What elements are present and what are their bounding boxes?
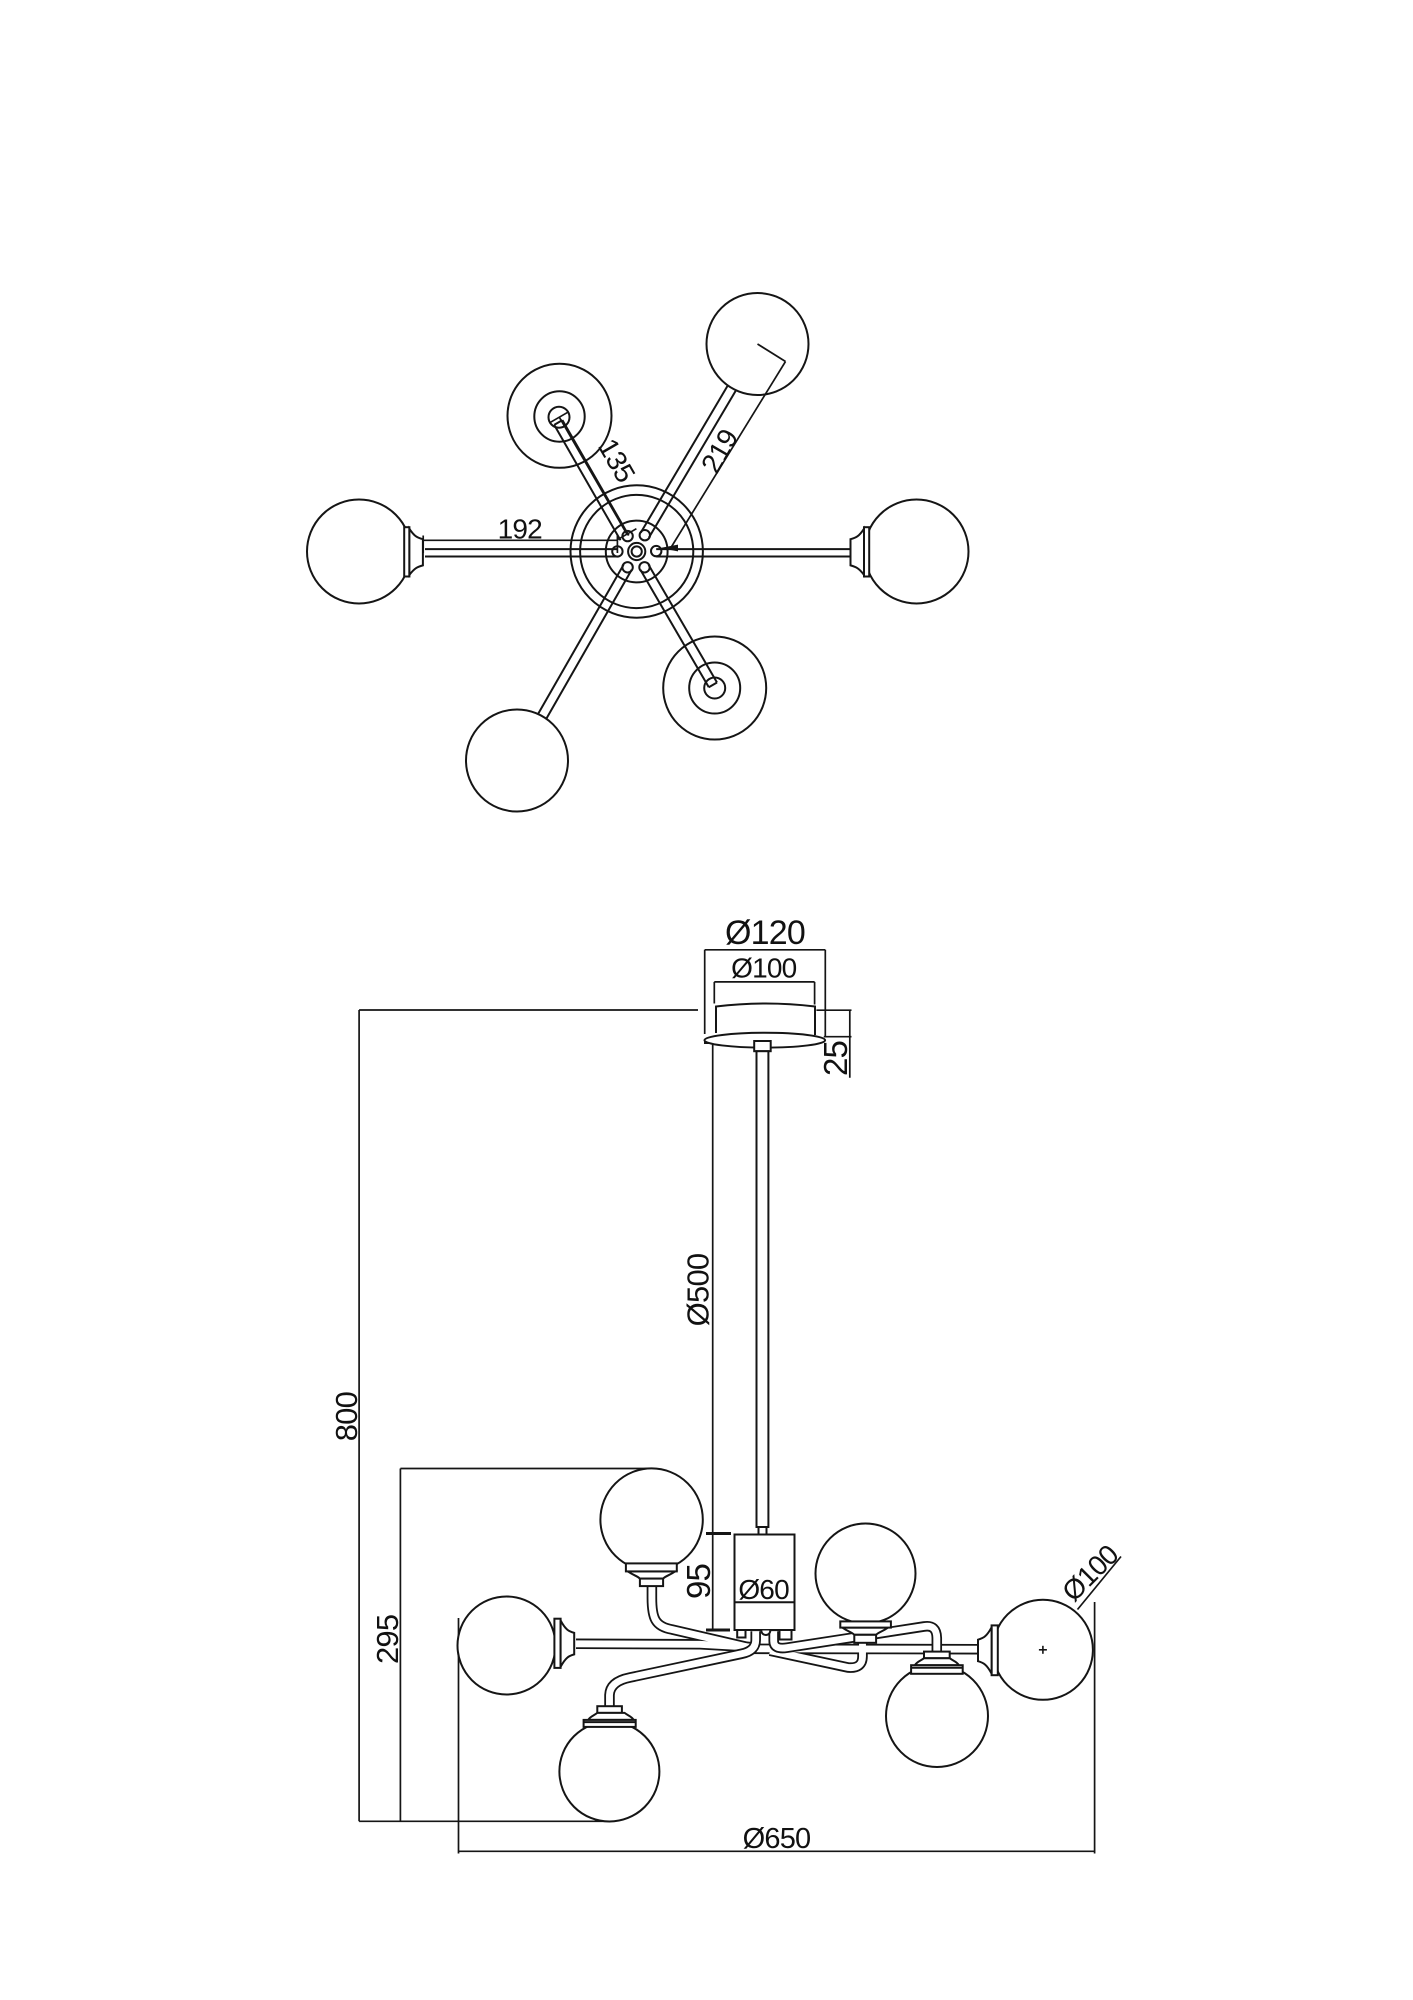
svg-text:135: 135 — [592, 433, 641, 487]
svg-text:800: 800 — [329, 1391, 364, 1441]
svg-text:Ø100: Ø100 — [731, 953, 797, 984]
svg-text:95: 95 — [680, 1564, 717, 1599]
svg-text:Ø100: Ø100 — [1056, 1539, 1124, 1607]
svg-text:Ø500: Ø500 — [680, 1253, 715, 1326]
svg-text:Ø60: Ø60 — [738, 1574, 789, 1605]
svg-text:219: 219 — [695, 424, 744, 478]
svg-text:Ø650: Ø650 — [743, 1823, 811, 1855]
svg-text:295: 295 — [370, 1615, 405, 1664]
svg-text:25: 25 — [817, 1041, 854, 1076]
svg-text:Ø120: Ø120 — [725, 914, 805, 952]
svg-text:192: 192 — [498, 514, 543, 545]
